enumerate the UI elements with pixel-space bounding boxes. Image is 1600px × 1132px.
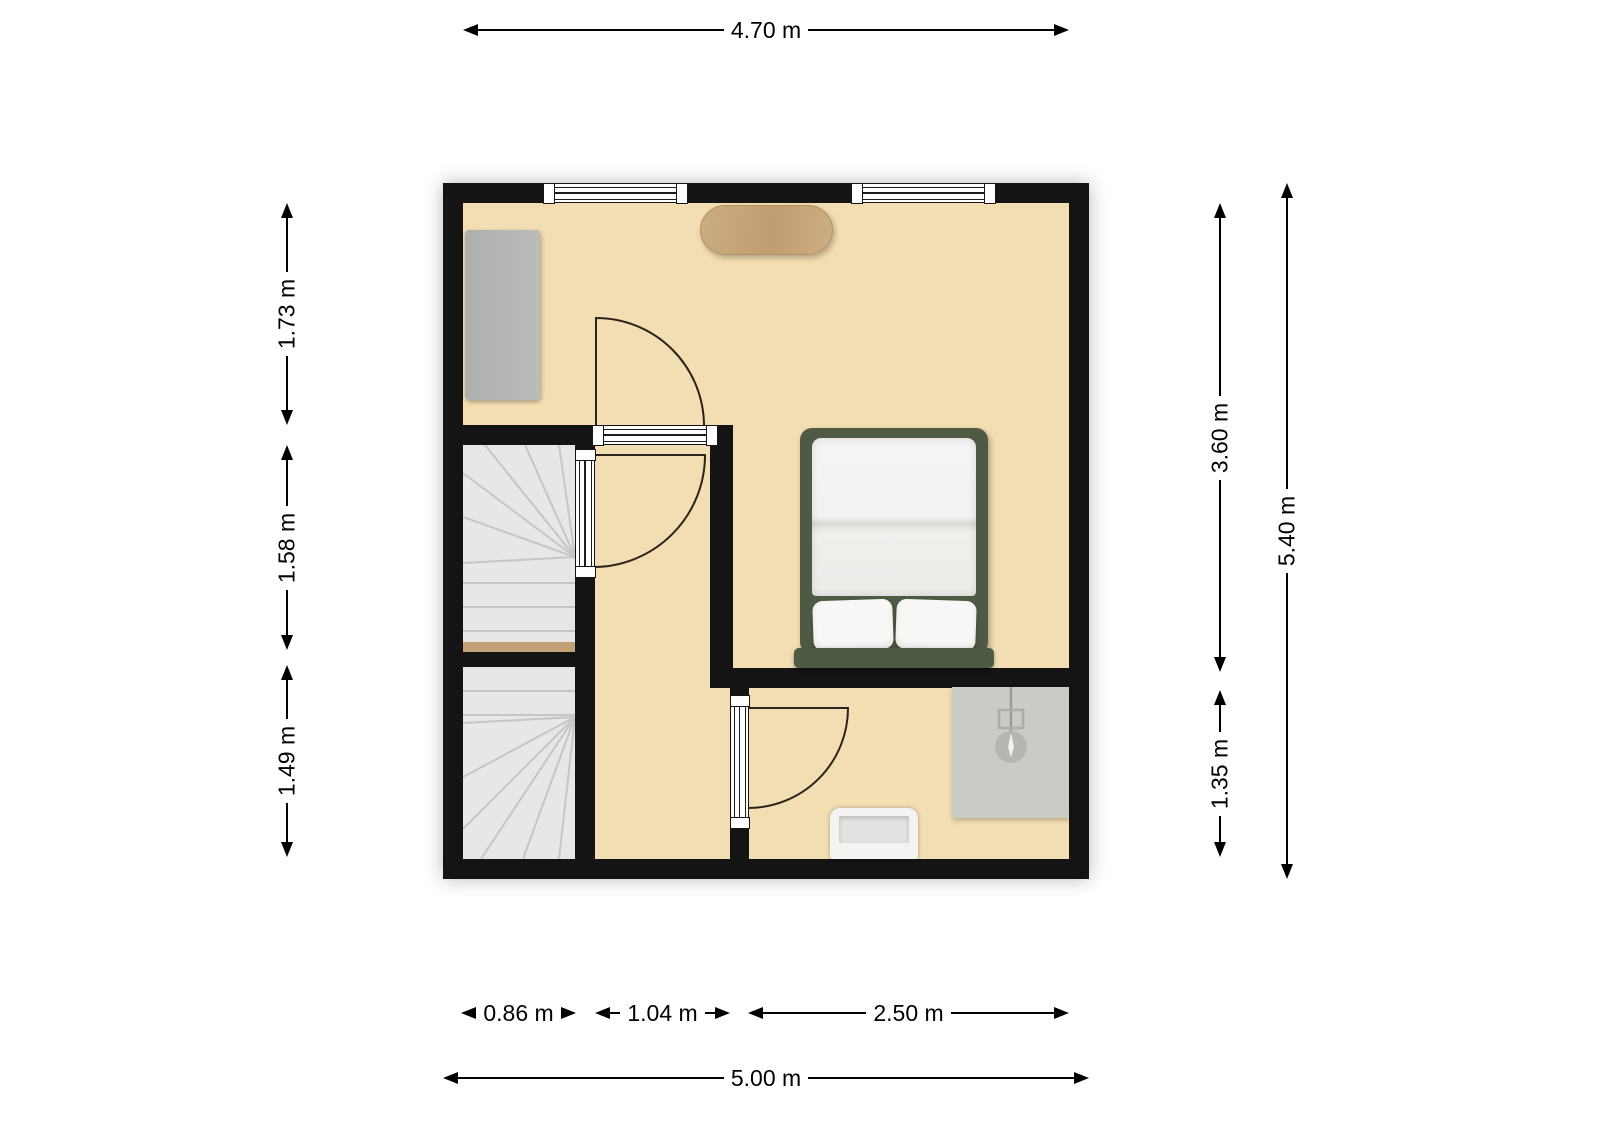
dimension-line xyxy=(286,460,288,506)
dimension-right-bathroom: 1.35 m xyxy=(1198,690,1242,857)
shower-head-icon xyxy=(952,687,1069,818)
stair-treads xyxy=(463,445,575,642)
dimension-top-width: 4.70 m xyxy=(463,18,1069,42)
dimension-line xyxy=(458,1077,724,1079)
arrowhead xyxy=(1074,1072,1089,1084)
dimension-left-2: 1.58 m xyxy=(265,445,309,650)
arrowhead xyxy=(281,842,293,857)
glazed-door-room xyxy=(592,425,717,445)
dimension-label: 1.58 m xyxy=(265,506,309,590)
arrowhead xyxy=(1214,657,1226,672)
dimension-bottom-bathroom: 2.50 m xyxy=(748,1001,1069,1025)
arrowhead xyxy=(1214,203,1226,218)
arrowhead xyxy=(281,445,293,460)
window-1 xyxy=(543,183,687,203)
window-cap xyxy=(676,183,688,204)
arrowhead xyxy=(561,1007,576,1019)
arrowhead xyxy=(748,1007,763,1019)
door-cap xyxy=(592,425,604,446)
winder-stairs-upper xyxy=(463,445,575,642)
arrowhead xyxy=(715,1007,730,1019)
arrowhead xyxy=(443,1072,458,1084)
arrowhead xyxy=(1054,1007,1069,1019)
sink xyxy=(830,808,918,859)
door-cap xyxy=(575,449,596,461)
dimension-line xyxy=(1219,705,1221,732)
interior-wall-bathroom-lower xyxy=(730,828,749,859)
bed-headboard xyxy=(794,648,994,668)
dresser xyxy=(465,230,540,400)
door-cap xyxy=(575,566,596,578)
dimension-label: 0.86 m xyxy=(476,1000,560,1027)
dimension-line xyxy=(705,1012,715,1014)
dimension-label: 1.35 m xyxy=(1198,732,1242,816)
dimension-line xyxy=(808,1077,1074,1079)
dimension-label: 5.00 m xyxy=(724,1065,808,1092)
arrowhead xyxy=(281,665,293,680)
window-cap xyxy=(984,183,996,204)
interior-wall-bedroom-bathroom xyxy=(710,668,1069,688)
dimension-line xyxy=(1286,198,1288,489)
dimension-bottom-total: 5.00 m xyxy=(443,1066,1089,1090)
arrowhead xyxy=(281,635,293,650)
dimension-label: 1.04 m xyxy=(620,1000,704,1027)
arrowhead xyxy=(595,1007,610,1019)
room-hallway xyxy=(595,445,710,859)
dimension-line xyxy=(808,29,1054,31)
dimension-label: 5.40 m xyxy=(1265,489,1309,573)
stair-treads xyxy=(463,667,575,859)
door-cap xyxy=(706,425,718,446)
wooden-table xyxy=(700,205,833,255)
dimension-line xyxy=(610,1012,620,1014)
dimension-bottom-hall: 1.04 m xyxy=(595,1001,730,1025)
dimension-label: 2.50 m xyxy=(866,1000,950,1027)
arrowhead xyxy=(461,1007,476,1019)
bed-duvet xyxy=(812,438,976,596)
window-2 xyxy=(851,183,995,203)
interior-wall-bathroom-upper xyxy=(730,668,749,695)
sink-basin xyxy=(839,816,909,843)
arrowhead xyxy=(1214,690,1226,705)
double-bed xyxy=(800,428,988,668)
window-cap xyxy=(543,183,555,204)
dimension-line xyxy=(478,29,724,31)
dimension-label: 4.70 m xyxy=(724,17,808,44)
dimension-left-3: 1.49 m xyxy=(265,665,309,857)
dimension-line xyxy=(286,680,288,719)
dimension-line xyxy=(286,803,288,842)
dimension-line xyxy=(951,1012,1054,1014)
dimension-line xyxy=(1286,573,1288,864)
interior-wall-hall-bedroom xyxy=(710,425,733,688)
dimension-right-bedroom: 3.60 m xyxy=(1198,203,1242,672)
interior-wall-top-room xyxy=(463,425,592,445)
dimension-bottom-stairs: 0.86 m xyxy=(462,1001,575,1025)
pillow-right xyxy=(895,599,977,652)
dimension-line xyxy=(1219,816,1221,843)
door-cap xyxy=(730,817,750,829)
glazed-door-bathroom xyxy=(730,695,749,828)
pillow-left xyxy=(812,599,894,652)
winder-stairs-lower xyxy=(463,667,575,859)
arrowhead xyxy=(281,203,293,218)
door-cap xyxy=(730,695,750,707)
dimension-label: 1.73 m xyxy=(265,272,309,356)
dimension-right-total: 5.40 m xyxy=(1265,183,1309,879)
shower xyxy=(952,687,1069,818)
arrowhead xyxy=(1054,24,1069,36)
arrowhead xyxy=(281,410,293,425)
arrowhead xyxy=(1281,183,1293,198)
interior-wall-stair-divider xyxy=(463,652,575,667)
dimension-line xyxy=(763,1012,866,1014)
dimension-line xyxy=(1219,218,1221,396)
dimension-line xyxy=(286,218,288,272)
arrowhead xyxy=(1281,864,1293,879)
stair-threshold xyxy=(463,642,575,652)
floor-plan xyxy=(443,183,1089,879)
dimension-left-1: 1.73 m xyxy=(265,203,309,425)
dimension-label: 1.49 m xyxy=(265,719,309,803)
arrowhead xyxy=(1214,842,1226,857)
dimension-line xyxy=(286,356,288,410)
arrowhead xyxy=(463,24,478,36)
window-cap xyxy=(851,183,863,204)
dimension-line xyxy=(1219,480,1221,658)
glazed-door-stairs xyxy=(575,449,595,577)
dimension-line xyxy=(286,590,288,636)
dimension-label: 3.60 m xyxy=(1198,396,1242,480)
